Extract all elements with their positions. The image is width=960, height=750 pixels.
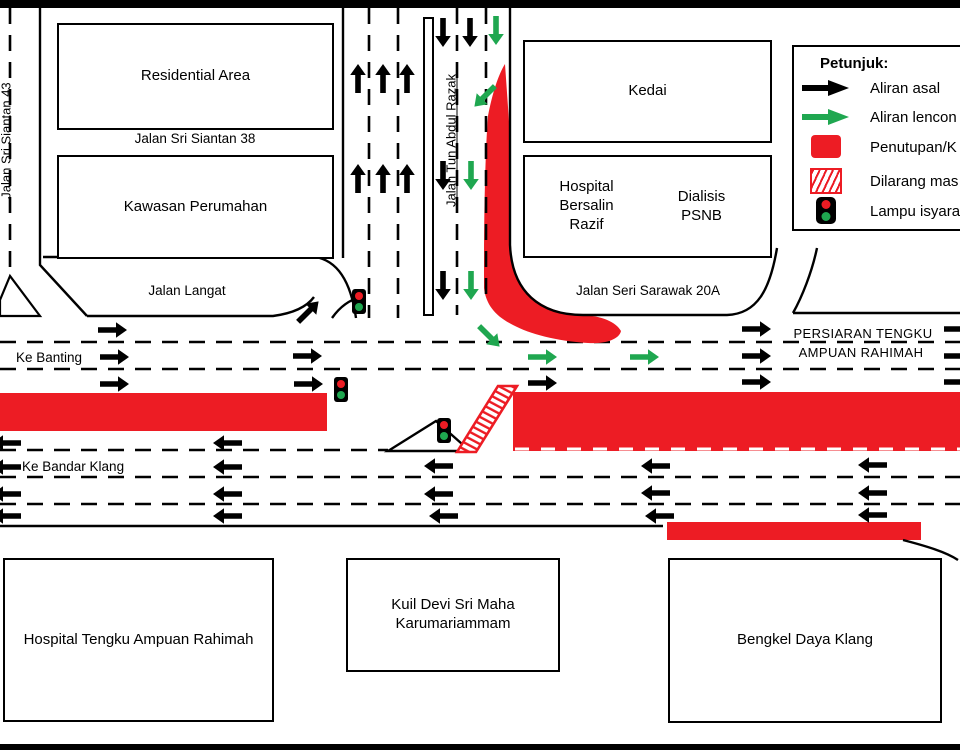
building-kawasan-perumahan: Kawasan Perumahan: [57, 155, 334, 259]
building-bengkel-daya-klang: Bengkel Daya Klang: [668, 558, 942, 723]
road-label-jalan-sri-siantan-43: Jalan Sri Siantan 43: [0, 71, 14, 211]
original-flow-arrow-icon: [0, 459, 21, 475]
road-label-jalan-sri-siantan-38: Jalan Sri Siantan 38: [105, 131, 285, 146]
traffic-island-center: [388, 421, 470, 451]
original-flow-arrow-icon: [645, 508, 674, 524]
traffic-light-icon: [437, 418, 451, 443]
original-flow-arrow-icon: [641, 458, 670, 474]
original-flow-arrow-icon: [100, 349, 129, 365]
diverted-flow-arrow-icon: [463, 271, 479, 300]
original-flow-arrow-icon: [641, 485, 670, 501]
lane-markings-west: [0, 477, 960, 504]
diverted-flow-arrow-icon: [488, 16, 504, 45]
original-flow-arrow-icon: [375, 64, 391, 93]
diverted-flow-arrow-icon: [528, 349, 557, 365]
original-flow-arrow-icon: [424, 486, 453, 502]
traffic-diversion-plan: Residential Area Kawasan Perumahan Kedai…: [0, 0, 960, 750]
original-flow-arrow-icon: [296, 301, 319, 324]
road-label-ke-bandar-klang: Ke Bandar Klang: [22, 459, 124, 474]
legend-item-label: Aliran asal: [870, 80, 940, 97]
diverted-flow-arrow-icon: [477, 324, 500, 347]
traffic-light-icon: [334, 377, 348, 402]
road-label-persiaran-tengku: PERSIARAN TENGKU: [778, 326, 948, 341]
road-label-jalan-langat: Jalan Langat: [122, 283, 252, 298]
original-flow-arrow-icon: [424, 458, 453, 474]
original-flow-arrow-icon: [399, 64, 415, 93]
building-hospital-tengku-ampuan-rahimah: Hospital Tengku Ampuan Rahimah: [3, 558, 274, 722]
original-flow-arrow-icon: [858, 485, 887, 501]
building-label: Hospital Bersalin Razif: [542, 178, 632, 234]
original-flow-arrow-icon: [858, 457, 887, 473]
diverted-flow-arrow-icon: [463, 161, 479, 190]
no-entry-hatched-zone: [457, 386, 517, 452]
original-flow-arrow-icon: [350, 64, 366, 93]
building-kedai: Kedai: [523, 40, 772, 143]
building-residential-area: Residential Area: [57, 23, 334, 130]
building-label: Kedai: [628, 82, 666, 101]
building-label: Bengkel Daya Klang: [737, 631, 873, 650]
original-flow-arrow-icon: [0, 508, 21, 524]
original-flow-arrow-icon: [858, 507, 887, 523]
original-flow-arrow-icon: [0, 435, 21, 451]
original-flow-arrow-icon: [528, 375, 557, 391]
legend-item-label: Dilarang mas: [870, 173, 958, 190]
road-label-ampuan-rahimah: AMPUAN RAHIMAH: [776, 345, 946, 360]
no-entry-hatch-icon: [800, 168, 852, 194]
original-flow-arrow-icon: [0, 486, 21, 502]
original-flow-arrow-icon: [742, 374, 771, 390]
building-kuil-devi: Kuil Devi Sri Maha Karumariammam: [346, 558, 560, 672]
legend-panel: Petunjuk: Aliran asal Aliran lencon Penu…: [792, 45, 960, 231]
legend-item-label: Penutupan/K: [870, 139, 957, 156]
original-flow-arrow-icon: [429, 508, 458, 524]
road-closure-block: [0, 393, 327, 431]
diverted-flow-arrow-icon: [630, 349, 659, 365]
original-flow-arrow-icon: [294, 376, 323, 392]
original-flow-arrow-icon: [462, 18, 478, 47]
original-flow-arrow-icon: [435, 18, 451, 47]
frame-top: [0, 0, 960, 8]
building-label: Kuil Devi Sri Maha Karumariammam: [363, 596, 543, 634]
closure-box-icon: [800, 135, 852, 158]
traffic-light-icon: [352, 289, 366, 314]
original-flow-arrow-icon: [944, 348, 960, 364]
road-label-ke-banting: Ke Banting: [16, 350, 82, 365]
original-flow-arrow-icon: [213, 508, 242, 524]
road-closure-block: [513, 392, 960, 451]
legend-item-label: Lampu isyara: [870, 203, 960, 220]
median-island: [424, 18, 433, 315]
original-flow-arrow-icon: [375, 164, 391, 193]
traffic-light-icon: [800, 197, 852, 224]
frame-bottom: [0, 744, 960, 750]
original-flow-arrow-icon: [293, 348, 322, 364]
building-label: Residential Area: [141, 67, 250, 86]
original-flow-arrow-icon: [100, 376, 129, 392]
original-flow-arrow-icon: [742, 321, 771, 337]
original-flow-arrow-icon: [742, 348, 771, 364]
building-label: Kawasan Perumahan: [124, 198, 267, 217]
traffic-island-west: [0, 276, 40, 316]
legend-item-label: Aliran lencon: [870, 109, 957, 126]
original-flow-arrow-icon: [213, 435, 242, 451]
diverted-flow-arrow-icon: [800, 108, 852, 126]
road-label-jalan-seri-sarawak-20a: Jalan Seri Sarawak 20A: [558, 283, 738, 298]
building-label: Dialisis PSNB: [662, 188, 742, 226]
original-flow-arrow-icon: [399, 164, 415, 193]
building-hospital-bersalin: Hospital Bersalin Razif Dialisis PSNB: [523, 155, 772, 258]
original-flow-arrow-icon: [435, 271, 451, 300]
original-flow-arrow-icon: [350, 164, 366, 193]
legend-title: Petunjuk:: [820, 55, 888, 72]
original-flow-arrow-icon: [800, 79, 852, 97]
original-flow-arrow-icon: [213, 486, 242, 502]
original-flow-arrow-icon: [98, 322, 127, 338]
original-flow-arrow-icon: [213, 459, 242, 475]
road-closure-block: [667, 522, 921, 540]
original-flow-arrow-icon: [944, 374, 960, 390]
building-label: Hospital Tengku Ampuan Rahimah: [24, 631, 254, 650]
road-label-jalan-tun-abdul-razak: Jalan Tun Abdul Razak: [444, 71, 459, 211]
